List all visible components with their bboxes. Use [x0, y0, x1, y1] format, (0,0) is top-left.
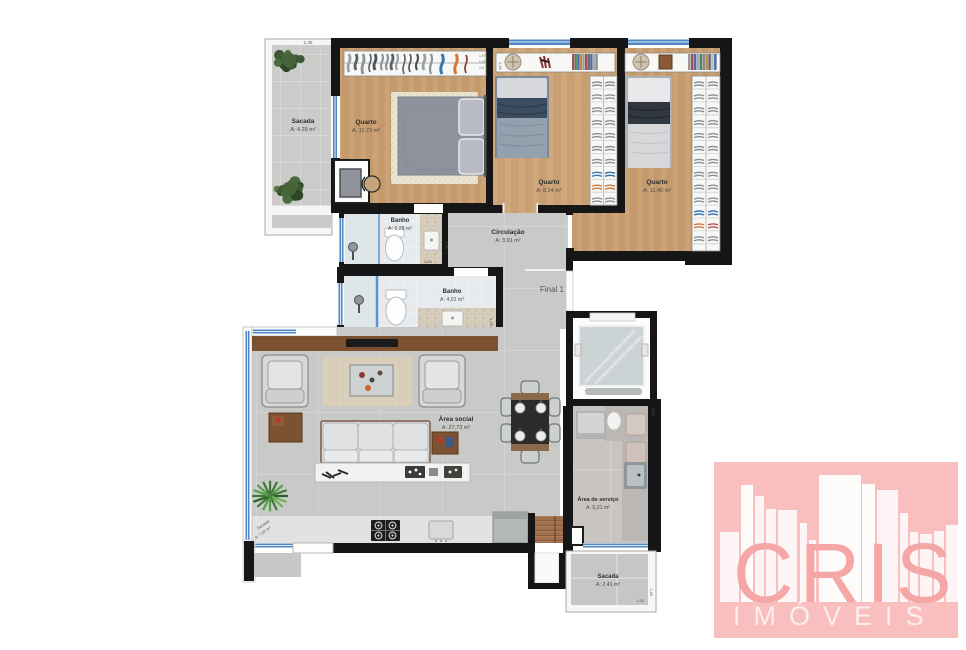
svg-text:A: 3,91 m²: A: 3,91 m²: [495, 238, 521, 244]
svg-text:1,28: 1,28: [649, 588, 653, 595]
svg-text:2,04: 2,04: [424, 259, 433, 264]
svg-text:A: 2,28 m²: A: 2,28 m²: [388, 226, 412, 232]
svg-text:A: 2,41 m²: A: 2,41 m²: [596, 582, 620, 588]
svg-text:A: 4,01 m²: A: 4,01 m²: [440, 297, 464, 303]
svg-text:Circulação: Circulação: [491, 229, 524, 236]
svg-text:A: 4,29 m²: A: 4,29 m²: [290, 127, 316, 133]
svg-text:1,25: 1,25: [636, 599, 643, 603]
svg-text:2,85: 2,85: [498, 62, 502, 69]
svg-text:Área social: Área social: [439, 414, 474, 423]
svg-text:1,30: 1,30: [304, 40, 313, 45]
svg-text:1,97: 1,97: [479, 54, 486, 58]
svg-text:A: 5,21 m²: A: 5,21 m²: [586, 505, 610, 511]
svg-text:Quarto: Quarto: [538, 179, 559, 186]
svg-text:0,62: 0,62: [651, 408, 655, 415]
svg-text:A: 8,24 m²: A: 8,24 m²: [536, 188, 562, 194]
svg-text:Banho: Banho: [443, 289, 462, 295]
svg-text:Final 1: Final 1: [540, 285, 565, 294]
svg-text:A: 11,73 m²: A: 11,73 m²: [352, 128, 380, 134]
svg-text:Banho: Banho: [391, 218, 410, 224]
svg-text:Quarto: Quarto: [355, 119, 376, 126]
svg-text:A: 27,73 m²: A: 27,73 m²: [442, 425, 471, 431]
svg-text:A: 11,40 m²: A: 11,40 m²: [643, 188, 671, 194]
svg-text:IMÓVEIS: IMÓVEIS: [733, 600, 937, 631]
svg-text:1,92: 1,92: [479, 60, 486, 64]
svg-text:1,29: 1,29: [444, 241, 448, 248]
svg-text:1,28: 1,28: [489, 318, 493, 325]
svg-text:Sacada: Sacada: [597, 574, 619, 580]
svg-text:1,9: 1,9: [479, 66, 484, 70]
svg-text:Quarto: Quarto: [646, 179, 667, 186]
svg-text:Sacada: Sacada: [292, 118, 315, 125]
svg-text:Área de serviço: Área de serviço: [578, 496, 620, 503]
